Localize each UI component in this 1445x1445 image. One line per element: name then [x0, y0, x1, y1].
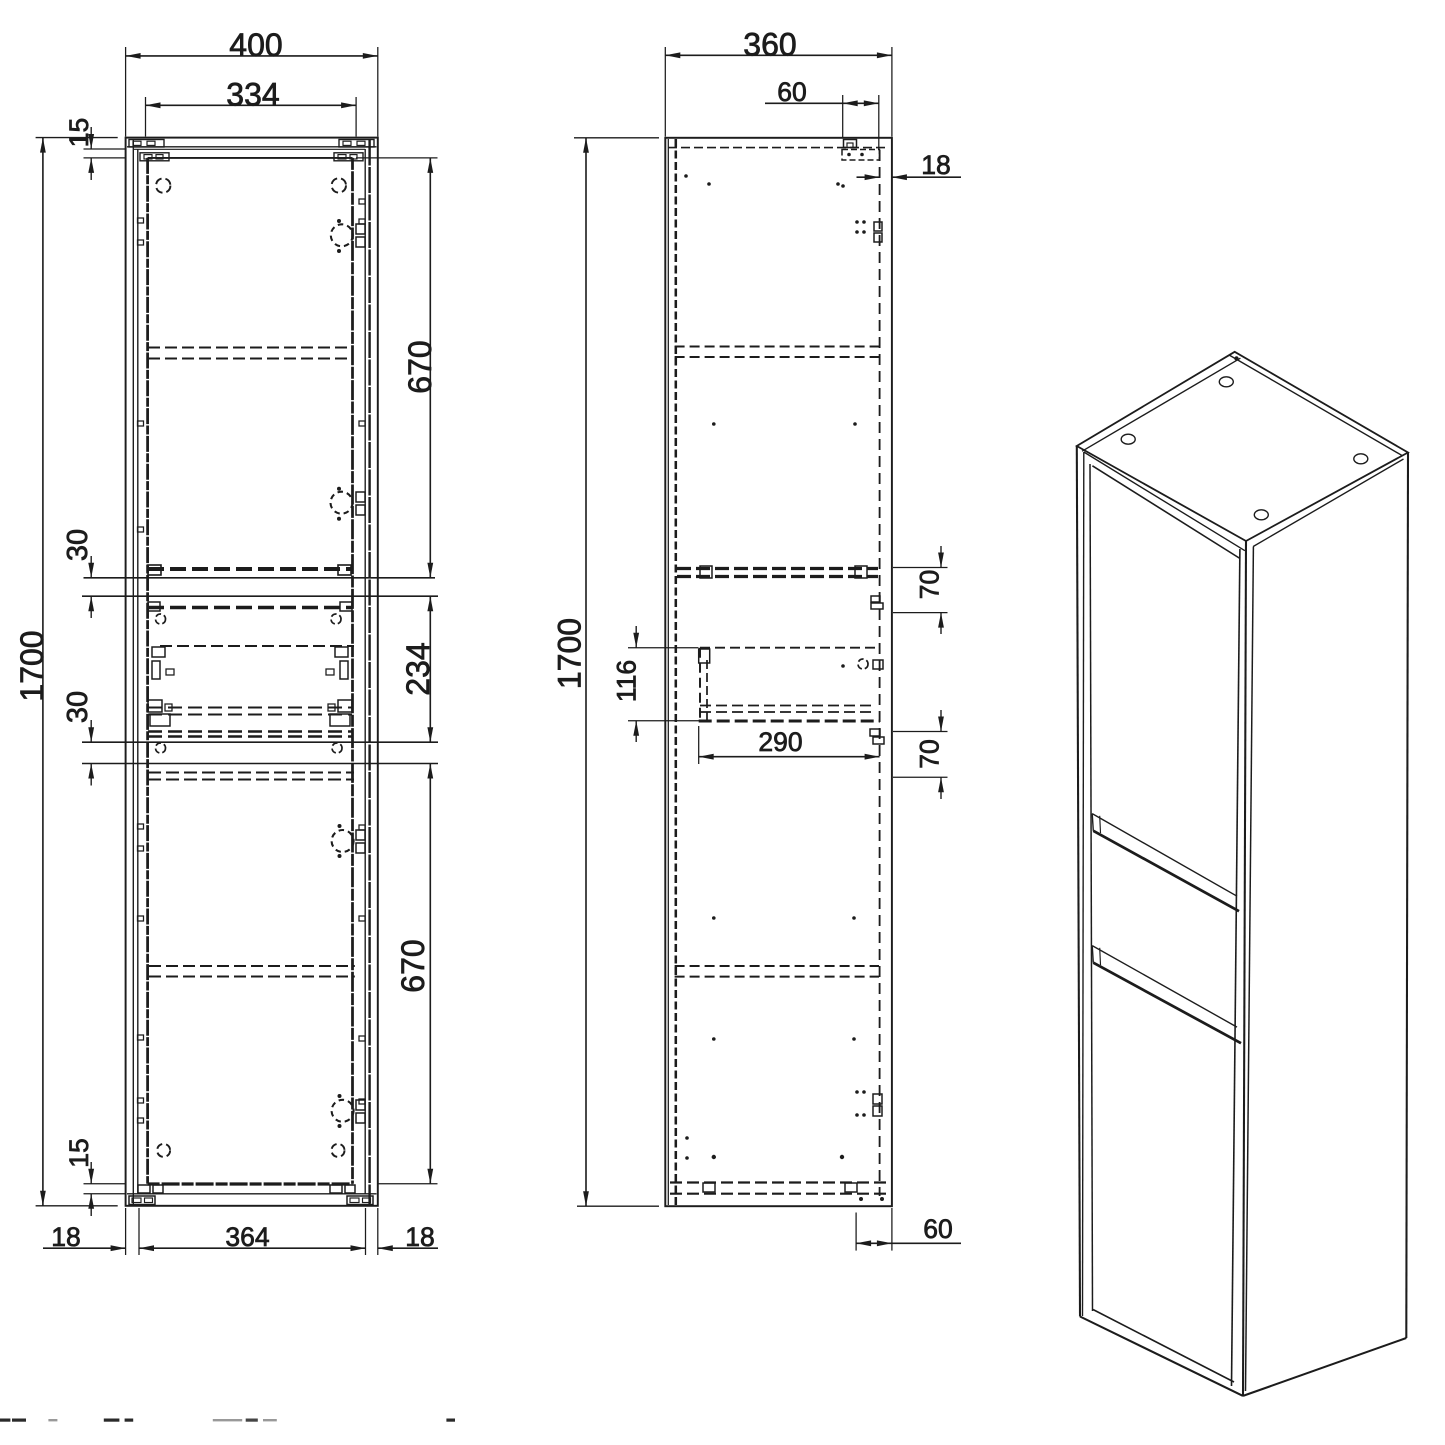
svg-text:400: 400: [229, 27, 282, 63]
svg-text:116: 116: [612, 660, 642, 702]
svg-text:60: 60: [923, 1214, 952, 1244]
svg-text:364: 364: [225, 1222, 269, 1252]
svg-text:15: 15: [64, 1138, 94, 1167]
svg-text:30: 30: [62, 529, 94, 561]
svg-text:670: 670: [402, 340, 438, 393]
svg-text:670: 670: [395, 939, 431, 992]
svg-text:70: 70: [915, 739, 945, 768]
svg-text:70: 70: [915, 570, 945, 599]
svg-text:18: 18: [921, 150, 950, 180]
svg-text:234: 234: [400, 642, 436, 695]
svg-text:60: 60: [777, 77, 806, 107]
svg-text:18: 18: [405, 1222, 434, 1252]
svg-text:1700: 1700: [552, 618, 588, 689]
svg-text:1700: 1700: [14, 630, 50, 701]
svg-text:18: 18: [51, 1222, 80, 1252]
svg-text:290: 290: [758, 727, 802, 757]
svg-text:334: 334: [226, 77, 279, 113]
svg-text:30: 30: [62, 691, 94, 723]
svg-text:15: 15: [64, 118, 94, 147]
svg-text:360: 360: [743, 26, 796, 62]
